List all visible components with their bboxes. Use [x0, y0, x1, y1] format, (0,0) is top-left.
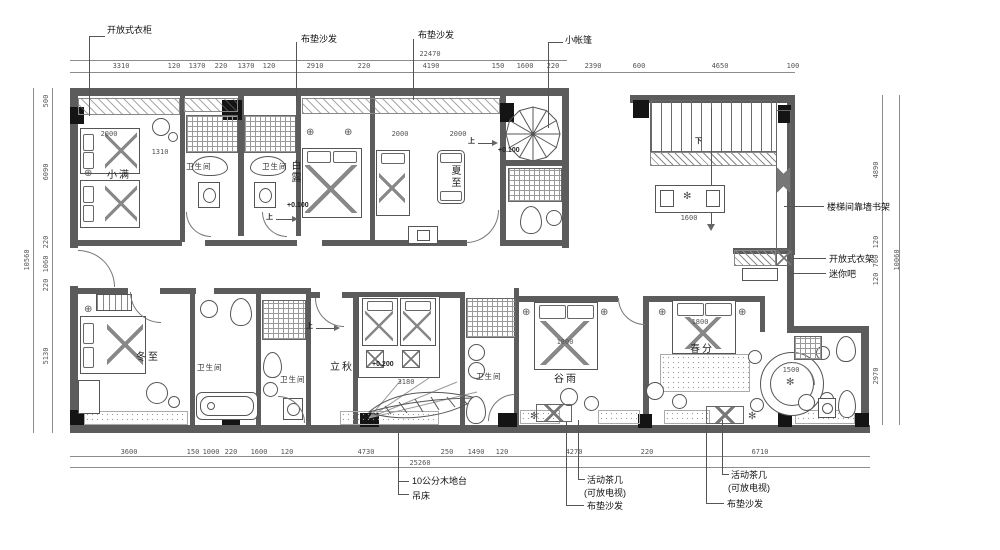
- room-label: 卫生间: [476, 371, 502, 382]
- callout-tea-table-note: (可放电视): [584, 486, 626, 499]
- dim: 1310: [152, 148, 169, 156]
- entrance-door-arc: [78, 250, 115, 287]
- dim: 4650: [712, 62, 729, 70]
- window-band: [184, 98, 238, 112]
- wall: [70, 240, 182, 246]
- callout-open-wardrobe: 开放式衣柜: [107, 23, 152, 36]
- open-clothes-rack: [734, 250, 776, 266]
- column: [855, 413, 869, 427]
- dim: 220: [225, 448, 238, 456]
- up-label: 上: [468, 136, 475, 146]
- rug: [660, 354, 750, 392]
- stool: [672, 394, 687, 409]
- shower-area: [262, 300, 306, 340]
- bed: [80, 180, 140, 228]
- floor-plan: 22470 3310 120 1370 220 1370 120 2910 22…: [0, 0, 1000, 550]
- callout-mini-bar: 迷你吧: [829, 267, 856, 280]
- sink: [200, 300, 218, 318]
- bedside-lamp-icon: ⊕: [738, 308, 746, 318]
- wall: [760, 296, 765, 332]
- up-arrow-head: [492, 140, 498, 146]
- dim-line-top-total: [70, 60, 567, 61]
- bedside-lamp-icon: ⊕: [522, 308, 530, 318]
- dim: 220: [215, 62, 228, 70]
- cushion-sofa-band: [302, 98, 500, 114]
- hall-table-seat: [660, 190, 674, 207]
- dim: 250: [441, 448, 454, 456]
- dim-line-left: [52, 88, 53, 433]
- leader: [296, 42, 297, 102]
- callout-hammock: 吊床: [412, 489, 430, 502]
- bedside-lamp-icon: ⊕: [344, 128, 352, 138]
- sink: [254, 182, 276, 208]
- dim: 1800: [557, 338, 574, 346]
- dim: 1600: [681, 214, 698, 222]
- leader: [398, 481, 409, 482]
- leader: [398, 494, 409, 495]
- dim: 120: [168, 62, 181, 70]
- up-arrow-head: [292, 216, 298, 222]
- dim: 120: [263, 62, 276, 70]
- leader: [566, 422, 567, 505]
- callout-cushion-sofa: 布垫沙发: [727, 497, 763, 510]
- dim: 3600: [121, 448, 138, 456]
- dim: 120: [872, 273, 880, 286]
- stair-landing: [650, 152, 777, 166]
- leader: [413, 39, 414, 100]
- callout-stair-bookshelf: 楼梯间靠墙书架: [827, 200, 890, 213]
- wall: [370, 96, 375, 242]
- callout-tea-table: 活动茶几: [587, 473, 623, 486]
- up-label: 上: [266, 212, 273, 222]
- leader: [790, 258, 826, 259]
- wall: [787, 255, 794, 330]
- toilet: [838, 390, 856, 418]
- dim: 220: [42, 236, 50, 249]
- callout-cushion-sofa: 布垫沙发: [301, 32, 337, 45]
- dim: 2000: [392, 130, 409, 138]
- door-arc: [618, 298, 645, 325]
- room-label: 春分: [690, 340, 714, 355]
- dim-line-top: [70, 72, 795, 73]
- dim-line-left-outer: [33, 88, 34, 433]
- stool: [748, 350, 762, 364]
- bedside-lamp-icon: ⊕: [84, 169, 92, 179]
- room-label: 立秋: [330, 358, 354, 373]
- sink: [263, 382, 278, 397]
- wall: [562, 88, 569, 248]
- stool: [152, 118, 170, 136]
- dim: 600: [633, 62, 646, 70]
- callout-tea-table: 活动茶几: [731, 468, 767, 481]
- bed: [80, 316, 146, 374]
- dim: 1000: [203, 448, 220, 456]
- bedside-lamp-icon: ⊕: [658, 308, 666, 318]
- wall: [322, 240, 467, 246]
- wall: [214, 288, 310, 294]
- dim: 3310: [113, 62, 130, 70]
- stair-down-label: 下: [695, 136, 702, 146]
- leader: [566, 505, 584, 506]
- sink: [546, 210, 562, 226]
- callout-wood-platform: 10公分木地台: [412, 474, 467, 487]
- dim: 2390: [585, 62, 602, 70]
- dim-right-total: 10060: [893, 249, 901, 270]
- dim: 220: [641, 448, 654, 456]
- dim: 4730: [358, 448, 375, 456]
- leader: [706, 425, 707, 503]
- level-mark: +0.200: [372, 361, 394, 368]
- callout-cushion-sofa: 布垫沙发: [418, 28, 454, 41]
- bed: [400, 298, 436, 346]
- dim-bottom-total: 25260: [409, 459, 430, 467]
- dim: 100: [787, 62, 800, 70]
- wall: [190, 288, 195, 428]
- shower-area: [244, 115, 296, 153]
- dim: 1370: [238, 62, 255, 70]
- callout-small-tent: 小帐篷: [565, 33, 592, 46]
- dim: 1800: [692, 318, 709, 326]
- dresser: [78, 380, 100, 414]
- leader: [722, 474, 729, 475]
- dim: 4270: [566, 448, 583, 456]
- toilet: [520, 206, 542, 234]
- toilet: [466, 396, 486, 424]
- stool: [646, 382, 664, 400]
- room-label: 白露: [287, 160, 302, 184]
- dim: 1370: [189, 62, 206, 70]
- dim: 120: [872, 236, 880, 249]
- dim-top-total: 22470: [419, 50, 440, 58]
- room-label: 卫生间: [186, 161, 212, 172]
- dim: 4190: [423, 62, 440, 70]
- toilet: [836, 336, 856, 362]
- tea-table: [536, 404, 572, 422]
- dim: 2970: [872, 368, 880, 385]
- bedside-lamp-icon: ⊕: [306, 128, 314, 138]
- door-arc: [315, 298, 344, 327]
- wardrobe: [96, 294, 132, 311]
- room-label: 卫生间: [197, 362, 223, 373]
- shower-area: [794, 336, 822, 360]
- dim-left-total: 10560: [23, 249, 31, 270]
- leader: [89, 36, 105, 37]
- bed: [362, 298, 398, 346]
- dim: 2000: [450, 130, 467, 138]
- dim: 500: [42, 95, 50, 108]
- level-mark: +0.100: [498, 147, 520, 154]
- wall: [500, 240, 567, 246]
- dim: 6090: [42, 164, 50, 181]
- dim: 1600: [517, 62, 534, 70]
- leader: [89, 36, 90, 116]
- wall: [787, 326, 868, 333]
- dim-line-bottom: [70, 456, 870, 457]
- stair-treads: [650, 100, 777, 152]
- room-label: 谷雨: [554, 370, 578, 385]
- room-label: 卫生间: [280, 374, 306, 385]
- wall: [306, 288, 311, 428]
- leader: [578, 479, 585, 480]
- room-label: 卫生间: [262, 161, 288, 172]
- plant-icon: ✻: [748, 412, 756, 422]
- table: [146, 382, 168, 404]
- room-label: 冬至: [136, 348, 160, 363]
- leader: [784, 206, 824, 207]
- bathtub: [196, 392, 258, 420]
- leader: [722, 420, 723, 474]
- open-wardrobe: [78, 98, 180, 115]
- shower-area: [186, 115, 238, 153]
- leader: [578, 420, 579, 479]
- dim: 120: [496, 448, 509, 456]
- wall: [205, 240, 297, 246]
- leader: [548, 42, 563, 43]
- tea-table: [706, 406, 744, 424]
- callout-clothes-rack: 开放式衣架: [829, 252, 874, 265]
- shower-area: [466, 298, 516, 338]
- door-arc: [488, 394, 515, 421]
- sink: [198, 182, 220, 208]
- mini-bar: [742, 268, 778, 281]
- plant-icon: ✻: [683, 192, 691, 202]
- bed: [534, 302, 598, 370]
- shower-area: [508, 168, 562, 202]
- wall: [70, 88, 567, 96]
- bed: [302, 148, 362, 218]
- side-table: [408, 226, 438, 244]
- sink: [468, 344, 485, 361]
- room-label: 小满: [107, 166, 131, 181]
- bedside-lamp-icon: ⊕: [84, 305, 92, 315]
- up-arrow-line: [478, 143, 492, 144]
- leader: [548, 42, 549, 128]
- dim: 150: [492, 62, 505, 70]
- sink: [798, 394, 815, 411]
- stair-bookshelf: [776, 110, 791, 250]
- dim: 150: [187, 448, 200, 456]
- leader: [398, 430, 399, 494]
- room-label: 夏至: [447, 165, 462, 189]
- callout-cushion-sofa: 布垫沙发: [587, 499, 623, 512]
- up-arrow-line: [276, 219, 292, 220]
- up-arrow-line: [316, 328, 334, 329]
- column: [638, 414, 652, 428]
- dim: 120: [281, 448, 294, 456]
- stair-arrow-head: [707, 224, 715, 231]
- wall: [180, 96, 185, 242]
- dim-line-right: [882, 95, 883, 425]
- washer: [818, 398, 836, 418]
- toilet: [230, 298, 252, 326]
- leader: [706, 503, 724, 504]
- dim: 1600: [251, 448, 268, 456]
- floor-cushion: [402, 350, 420, 368]
- hall-table-seat: [706, 190, 720, 207]
- floor-strip: [598, 410, 640, 424]
- dim: 220: [42, 279, 50, 292]
- bed: [376, 150, 410, 216]
- leader: [790, 273, 826, 274]
- stool: [584, 396, 599, 411]
- dim: 3180: [398, 378, 415, 386]
- door-arc: [466, 210, 499, 243]
- dim: 5130: [42, 348, 50, 365]
- hammock-icon: [365, 376, 480, 422]
- dim: 1060: [42, 256, 50, 273]
- plant-icon: ✻: [530, 412, 538, 422]
- callout-tea-table-note: (可放电视): [728, 481, 770, 494]
- stool: [168, 396, 180, 408]
- door-arc: [186, 212, 211, 237]
- dim: 4890: [872, 162, 880, 179]
- dim: 220: [358, 62, 371, 70]
- up-label: 上: [306, 321, 313, 331]
- stool: [168, 132, 178, 142]
- column: [633, 100, 649, 118]
- dim: 2000: [101, 130, 118, 138]
- level-mark: +0.100: [287, 202, 309, 209]
- floor-strip: [664, 410, 710, 424]
- dim: 1490: [468, 448, 485, 456]
- stool: [750, 398, 764, 412]
- bedside-lamp-icon: ⊕: [600, 308, 608, 318]
- dim: 6710: [752, 448, 769, 456]
- dim: 2910: [307, 62, 324, 70]
